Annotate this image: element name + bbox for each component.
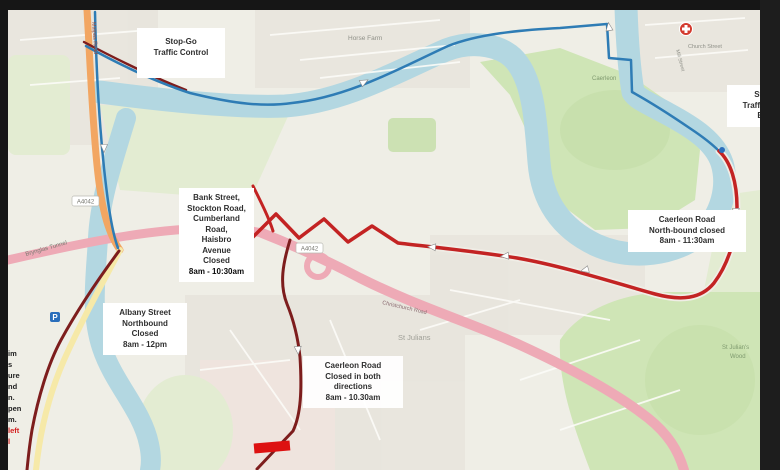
annotation-line: left <box>8 425 34 436</box>
map-label-st-julians-wood: Wood <box>730 354 746 360</box>
annotation-line: Closed <box>181 256 252 267</box>
map-label-horse-farm: Horse Farm <box>348 35 382 42</box>
annotation-line: Northbound <box>105 319 185 330</box>
annotation-caerleon-road-closure-right: Caerleon Road North-bound closed 8am - 1… <box>628 210 746 252</box>
annotation-line: pen <box>8 403 34 414</box>
annotation-line: Avenue <box>181 246 252 257</box>
annotation-time: 8am - 12pm <box>105 340 185 351</box>
letterbox-left <box>0 0 8 470</box>
annotation-line: Stockton Road, <box>181 204 252 215</box>
annotation-line: Traffic Control <box>139 48 223 59</box>
road-badge-a4042: A4042 <box>72 196 99 206</box>
annotation-line: directions <box>305 382 401 393</box>
annotation-line: North-bound closed <box>630 226 744 237</box>
svg-text:P: P <box>52 313 58 322</box>
annotation-line: Stop-Go <box>139 37 223 48</box>
annotation-bank-street-closures: Bank Street, Stockton Road, Cumberland R… <box>179 188 254 282</box>
road-badge-a4042: A4042 <box>296 243 323 253</box>
annotation-line: ure <box>8 370 34 381</box>
map-label-st-julians-wood: St Julian's <box>722 345 749 351</box>
map-label-st-julians: St Julians <box>398 333 431 342</box>
annotation-albany-street-closure: Albany Street Northbound Closed 8am - 12… <box>103 303 187 355</box>
annotation-left-clipped: im s ure nd n. pen m. left l <box>8 348 34 447</box>
annotation-time: 8am - 11:30am <box>630 236 744 247</box>
annotation-line: Road, <box>181 225 252 236</box>
annotation-line: Caerleon Road <box>305 361 401 372</box>
annotation-line: l <box>8 436 34 447</box>
annotation-line: nd <box>8 381 34 392</box>
letterbox-right <box>760 0 780 470</box>
parking-icon: P <box>50 312 60 322</box>
annotation-line: im <box>8 348 34 359</box>
annotation-line: Bank Street, <box>181 193 252 204</box>
svg-text:A4042: A4042 <box>301 247 319 253</box>
annotation-stop-go-traffic-control: Stop-Go Traffic Control <box>137 28 225 78</box>
annotation-line: Cumberland <box>181 214 252 225</box>
annotation-caerleon-road-closure-center: Caerleon Road Closed in both directions … <box>303 356 403 408</box>
annotation-time: 8am - 10.30am <box>305 393 401 404</box>
road-closure-map: P Horse Farm Brynglas Tunnel St Julians … <box>0 0 780 470</box>
annotation-line: Haisbro <box>181 235 252 246</box>
annotation-time: 8am - 10:30am <box>181 267 252 278</box>
svg-text:A4042: A4042 <box>77 200 95 206</box>
first-aid-icon <box>680 23 693 36</box>
letterbox-top <box>0 0 780 10</box>
annotation-line: s <box>8 359 34 370</box>
annotation-line: Albany Street <box>105 308 185 319</box>
annotation-line: m. <box>8 414 34 425</box>
bridge-point-icon <box>719 147 725 153</box>
annotation-line: Caerleon Road <box>630 215 744 226</box>
annotation-line: n. <box>8 392 34 403</box>
map-label-church-street: Church Street <box>688 44 722 50</box>
map-label-caerleon: Caerleon <box>592 76 616 82</box>
annotation-line: Closed <box>105 329 185 340</box>
annotation-line: Closed in both <box>305 372 401 383</box>
